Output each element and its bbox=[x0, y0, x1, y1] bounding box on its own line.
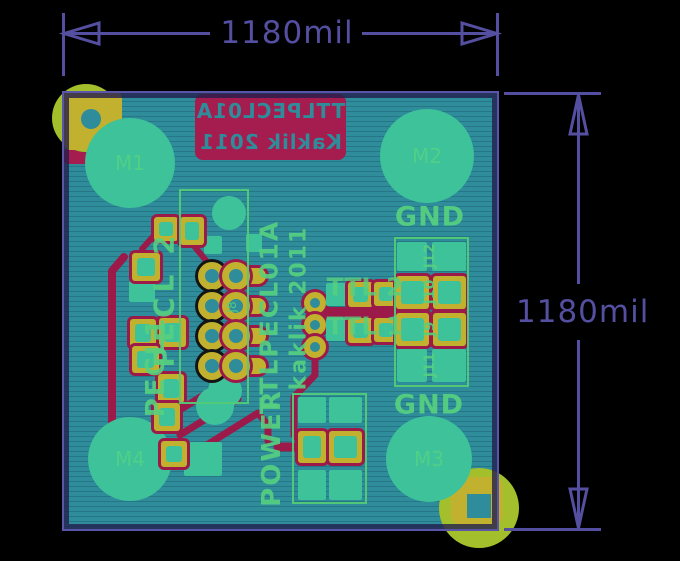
dimension-strokes bbox=[64, 13, 602, 530]
dimension-top-label: 1180mil bbox=[212, 15, 362, 51]
dimension-lines bbox=[0, 0, 680, 561]
dimension-right-label: 1180mil bbox=[516, 294, 642, 330]
